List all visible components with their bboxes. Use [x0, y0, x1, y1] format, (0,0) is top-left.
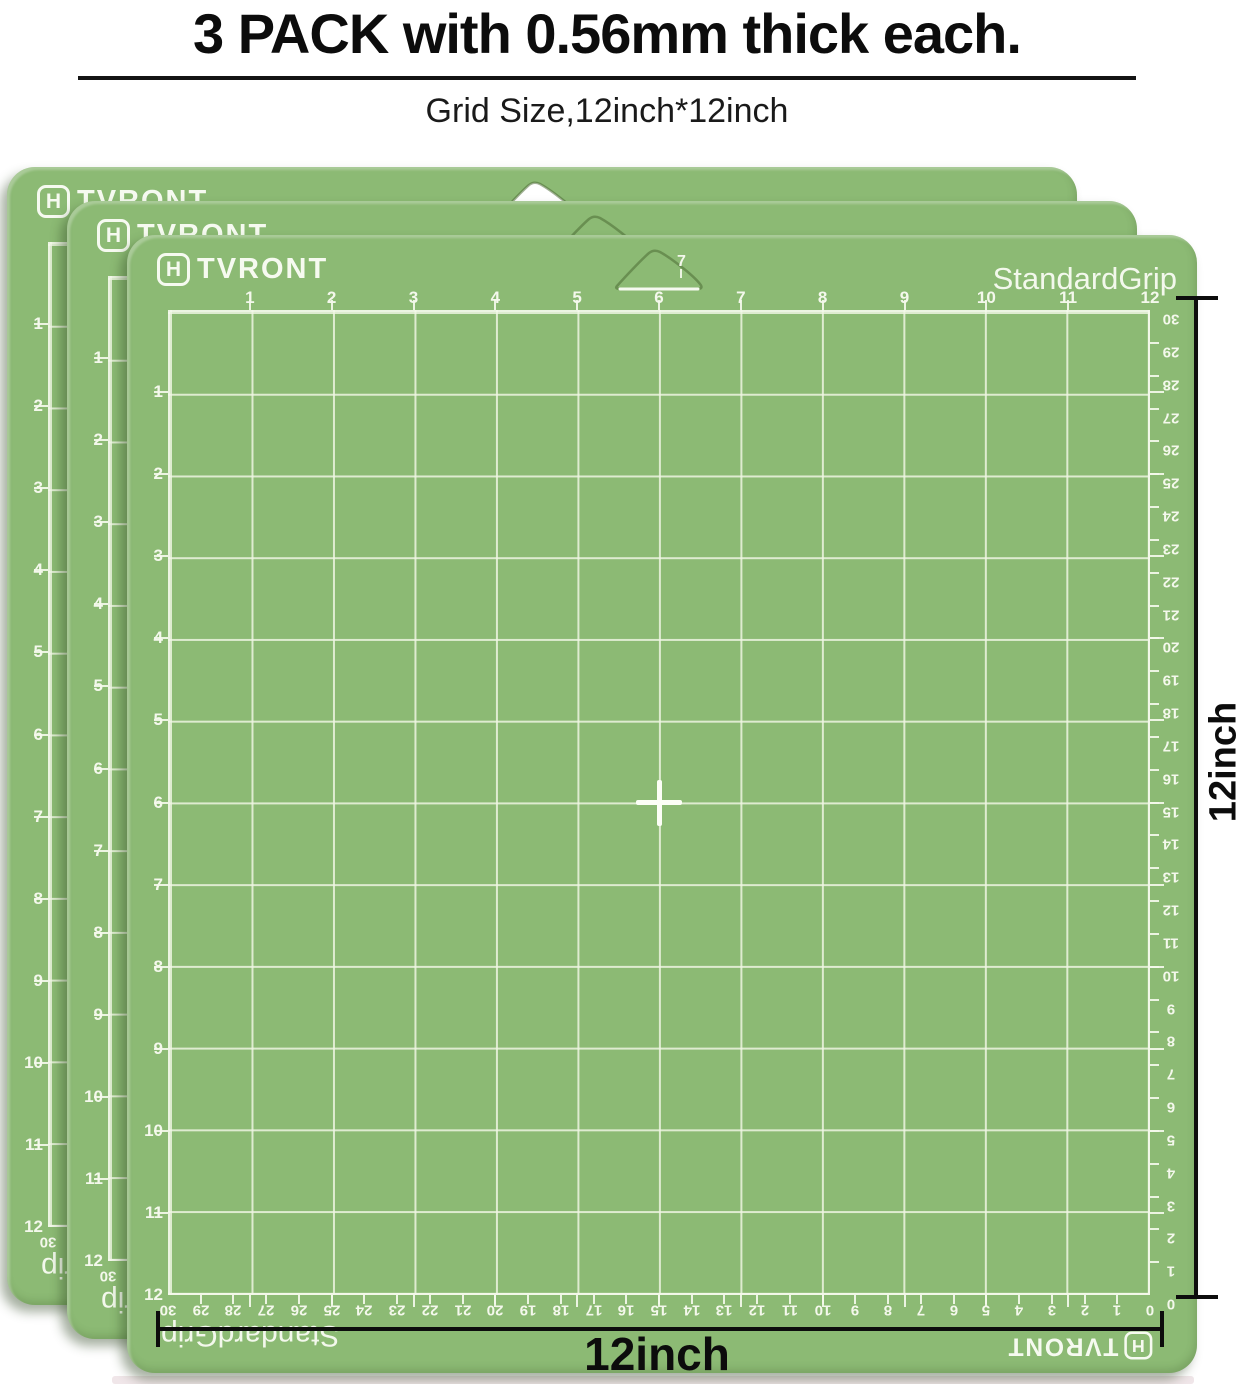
height-dimension-cap-bottom	[1176, 1295, 1218, 1299]
ruler-tick-right-inch	[1150, 1048, 1164, 1050]
ruler-number-bottom-cm: 16	[618, 1302, 635, 1319]
brand-h-icon: H	[157, 253, 190, 286]
ruler-number-bottom-cm: 24	[356, 1302, 373, 1319]
ruler-tick-left	[34, 898, 48, 900]
ruler-tick-right-cm	[1150, 1228, 1159, 1230]
product-image: 3 PACK with 0.56mm thick each. Grid Size…	[0, 0, 1248, 1384]
ruler-tick-right-cm	[1150, 539, 1159, 541]
ruler-number-bottom-cm: 3	[1048, 1302, 1056, 1319]
ruler-tick-left	[34, 1144, 48, 1146]
grid-size-subtitle: Grid Size,12inch*12inch	[78, 92, 1136, 131]
ruler-number-right-cm: 0	[1167, 1296, 1175, 1313]
ruler-tick-left	[34, 323, 48, 325]
ruler-number-right-cm: 17	[1163, 737, 1180, 754]
ruler-number-right-cm: 14	[1163, 836, 1180, 853]
width-dimension-cap-right	[1160, 1311, 1164, 1347]
ruler-number-bottom-cm: 29	[192, 1302, 209, 1319]
height-dimension-label: 12inch	[1203, 702, 1246, 822]
ruler-number-bottom-cm: 18	[552, 1302, 569, 1319]
ruler-number-right-cm: 25	[1163, 475, 1180, 492]
ruler-tick-left	[154, 391, 168, 393]
ruler-number-right-cm: 30	[1163, 311, 1180, 328]
ruler-number-bottom-cm: 15	[651, 1302, 668, 1319]
ruler-number-bottom-cm: 30	[100, 1268, 117, 1285]
ruler-number-right-cm: 19	[1163, 672, 1180, 689]
ruler-number-bottom-cm: 23	[389, 1302, 406, 1319]
ruler-number-bottom-cm: 5	[982, 1302, 990, 1319]
ruler-number-right-cm: 22	[1163, 573, 1180, 590]
ruler-tick-top	[904, 300, 906, 310]
ruler-number-bottom-cm: 27	[258, 1302, 275, 1319]
header: 3 PACK with 0.56mm thick each. Grid Size…	[78, 0, 1136, 66]
ruler-tick-right-cm	[1150, 999, 1159, 1001]
ruler-number-right-cm: 5	[1167, 1131, 1175, 1148]
ruler-tick-right-cm	[1150, 572, 1159, 574]
hanging-hole-triangle	[611, 243, 707, 293]
ruler-number-bottom-cm: 2	[1080, 1302, 1088, 1319]
ruler-number-bottom-cm: 17	[585, 1302, 602, 1319]
ruler-number-right-cm: 23	[1163, 540, 1180, 557]
ruler-tick-right-inch	[1150, 1212, 1164, 1214]
ruler-tick-right-cm	[1150, 473, 1159, 475]
ruler-number-right-cm: 12	[1163, 902, 1180, 919]
ruler-tick-right-cm	[1150, 1196, 1159, 1198]
ruler-tick-right-cm	[1150, 440, 1159, 442]
ruler-tick-right-cm	[1150, 342, 1159, 344]
ruler-tick-left	[94, 521, 108, 523]
ruler-number-bottom-cm: 0	[1146, 1302, 1154, 1319]
ruler-tick-right-cm	[1150, 802, 1159, 804]
center-cross-mark	[657, 780, 662, 826]
ruler-tick-bottom-inch	[249, 1295, 251, 1307]
ruler-tick-left	[154, 555, 168, 557]
ruler-tick-right-cm	[1150, 375, 1159, 377]
ruler-tick-left	[34, 569, 48, 571]
ruler-tick-right-cm	[1150, 769, 1159, 771]
ruler-tick-left	[154, 719, 168, 721]
ruler-number-right-cm: 6	[1167, 1099, 1175, 1116]
ruler-number-bottom-cm: 9	[851, 1302, 859, 1319]
cutting-mat-1: HTVRONTStandardGrip123456789101112123456…	[127, 235, 1197, 1373]
ruler-tick-left	[154, 966, 168, 968]
ruler-tick-top	[658, 300, 660, 310]
ruler-tick-left	[34, 651, 48, 653]
ruler-number-bottom-cm: 8	[884, 1302, 892, 1319]
ruler-tick-left	[94, 603, 108, 605]
brand-logo: HTVRONT	[157, 253, 328, 286]
ruler-number-bottom-cm: 13	[716, 1302, 733, 1319]
ruler-tick-bottom-inch	[1067, 1295, 1069, 1307]
ruler-tick-top	[985, 300, 987, 310]
ruler-tick-top	[413, 300, 415, 310]
ruler-tick-left	[94, 850, 108, 852]
ruler-number-bottom-cm: 1	[1113, 1302, 1121, 1319]
ruler-tick-right-cm	[1150, 1130, 1159, 1132]
height-dimension-line	[1194, 298, 1198, 1299]
ruler-tick-bottom-inch	[413, 1295, 415, 1307]
ruler-tick-left	[34, 816, 48, 818]
ruler-tick-right-cm	[1150, 506, 1159, 508]
ruler-tick-top	[1067, 300, 1069, 310]
ruler-tick-right-cm	[1150, 900, 1159, 902]
ruler-number-bottom-cm: 4	[1015, 1302, 1023, 1319]
ruler-tick-right-cm	[1150, 605, 1159, 607]
ruler-number-right-cm: 21	[1163, 606, 1180, 623]
page-title: 3 PACK with 0.56mm thick each.	[78, 0, 1136, 66]
ruler-number-right-cm: 3	[1167, 1197, 1175, 1214]
ruler-tick-left	[34, 487, 48, 489]
ruler-number-right-cm: 29	[1163, 343, 1180, 360]
ruler-number-right-cm: 16	[1163, 770, 1180, 787]
ruler-tick-left	[154, 1130, 168, 1132]
ruler-tick-right-cm	[1150, 637, 1159, 639]
ruler-tick-right-cm	[1150, 736, 1159, 738]
brand-h-icon: H	[1124, 1331, 1152, 1359]
ruler-number-right-cm: 28	[1163, 376, 1180, 393]
ruler-number-bottom-cm: 19	[520, 1302, 537, 1319]
ruler-number-right-cm: 10	[1163, 967, 1180, 984]
ruler-number-right-cm: 7	[1167, 1066, 1175, 1083]
ruler-number-right-cm: 20	[1163, 639, 1180, 656]
ruler-number-bottom-cm: 20	[487, 1302, 504, 1319]
ruler-number-right-cm: 24	[1163, 508, 1180, 525]
ruler-number-bottom-cm: 11	[782, 1302, 798, 1319]
grip-type-label-flipped: StandardGrip	[161, 1318, 339, 1352]
ruler-tick-left	[94, 439, 108, 441]
ruler-tick-left	[154, 1212, 168, 1214]
width-dimension-label: 12inch	[584, 1327, 730, 1381]
ruler-tick-left	[34, 980, 48, 982]
ruler-number-right-cm: 1	[1167, 1263, 1175, 1280]
ruler-tick-left	[154, 884, 168, 886]
ruler-number-right-cm: 27	[1163, 409, 1180, 426]
ruler-tick-top	[740, 300, 742, 310]
ruler-tick-left	[94, 932, 108, 934]
ruler-tick-left	[34, 405, 48, 407]
ruler-tick-right-cm	[1150, 867, 1159, 869]
ruler-tick-left	[34, 1062, 48, 1064]
ruler-tick-left	[154, 1048, 168, 1050]
ruler-tick-left	[94, 1178, 108, 1180]
ruler-number-right-cm: 11	[1163, 934, 1179, 951]
ruler-number-right-cm: 8	[1167, 1033, 1175, 1050]
ruler-number-bottom-cm: 12	[749, 1302, 766, 1319]
ruler-tick-right-cm	[1150, 1031, 1159, 1033]
ruler-tick-right-cm	[1150, 1261, 1159, 1263]
ruler-number-right-cm: 26	[1163, 442, 1180, 459]
ruler-number-right-cm: 15	[1163, 803, 1180, 820]
hole-peek-tick	[680, 269, 682, 278]
ruler-tick-top	[331, 300, 333, 310]
ruler-number-bottom-cm: 21	[454, 1302, 471, 1319]
ruler-tick-top	[249, 300, 251, 310]
ruler-number-bottom-cm: 30	[160, 1302, 177, 1319]
ruler-tick-left	[94, 1014, 108, 1016]
ruler-tick-bottom-inch	[904, 1295, 906, 1307]
ruler-tick-top	[494, 300, 496, 310]
ruler-number-right-cm: 18	[1163, 705, 1180, 722]
ruler-tick-right-cm	[1150, 670, 1159, 672]
ruler-number-right-cm: 2	[1167, 1230, 1175, 1247]
ruler-tick-right-cm	[1150, 966, 1159, 968]
ruler-number-bottom-cm: 14	[683, 1302, 700, 1319]
ruler-tick-right-cm	[1150, 1064, 1159, 1066]
brand-logo-text: TVRONT	[1007, 1331, 1119, 1359]
ruler-number-bottom-cm: 22	[422, 1302, 439, 1319]
ruler-number-top: 12	[1141, 288, 1160, 308]
ruler-number-bottom-cm: 25	[323, 1302, 340, 1319]
brand-logo-flipped: HTVRONT	[1007, 1331, 1153, 1359]
ruler-number-bottom-cm: 26	[291, 1302, 308, 1319]
ruler-tick-left	[94, 1096, 108, 1098]
ruler-tick-right-cm	[1150, 1097, 1159, 1099]
brand-h-icon: H	[97, 219, 130, 252]
ruler-tick-top	[822, 300, 824, 310]
ruler-number-bottom-cm: 6	[949, 1302, 957, 1319]
ruler-tick-left	[154, 637, 168, 639]
divider-line	[78, 76, 1136, 80]
ruler-tick-right-cm	[1150, 834, 1159, 836]
ruler-number-bottom-cm: 30	[40, 1234, 57, 1251]
ruler-number-right-cm: 9	[1167, 1000, 1175, 1017]
ruler-tick-left	[154, 802, 168, 804]
ruler-tick-left	[94, 768, 108, 770]
width-dimension-cap-left	[156, 1311, 160, 1347]
height-dimension-cap-top	[1176, 296, 1218, 300]
ruler-number-right-cm: 13	[1163, 869, 1180, 886]
ruler-number-bottom-cm: 28	[225, 1302, 242, 1319]
ruler-number-right-cm: 4	[1167, 1164, 1175, 1181]
ruler-tick-bottom-inch	[740, 1295, 742, 1307]
ruler-tick-left	[34, 734, 48, 736]
ruler-tick-bottom-inch	[576, 1295, 578, 1307]
ruler-tick-left	[154, 473, 168, 475]
ruler-tick-right-cm	[1150, 408, 1159, 410]
ruler-tick-right-cm	[1150, 703, 1159, 705]
brand-logo-text: TVRONT	[197, 253, 328, 286]
ruler-tick-left	[94, 357, 108, 359]
ruler-tick-right-cm	[1150, 933, 1159, 935]
ruler-tick-right-cm	[1150, 1163, 1159, 1165]
ruler-tick-top	[576, 300, 578, 310]
brand-h-icon: H	[37, 185, 70, 218]
ruler-number-bottom-cm: 10	[814, 1302, 831, 1319]
ruler-tick-left	[94, 685, 108, 687]
ruler-number-bottom-cm: 7	[917, 1302, 925, 1319]
